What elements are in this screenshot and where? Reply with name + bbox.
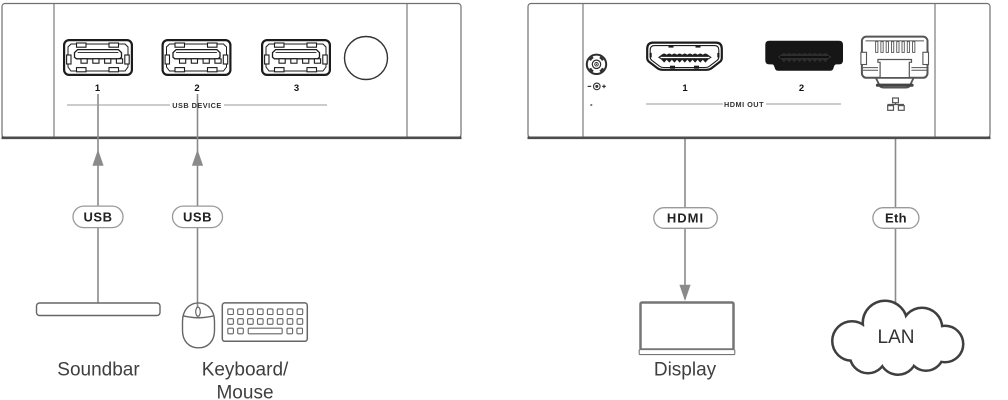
svg-text:2: 2 bbox=[194, 83, 199, 94]
svg-text:Keyboard/: Keyboard/ bbox=[202, 360, 289, 381]
svg-text:Soundbar: Soundbar bbox=[57, 360, 140, 381]
svg-text:HDMI: HDMI bbox=[667, 211, 704, 226]
svg-text:USB DEVICE: USB DEVICE bbox=[172, 101, 222, 110]
svg-text:2: 2 bbox=[799, 83, 804, 94]
svg-text:USB: USB bbox=[84, 209, 113, 224]
svg-text:1: 1 bbox=[682, 83, 688, 94]
svg-text:Display: Display bbox=[654, 360, 717, 381]
svg-text:Mouse: Mouse bbox=[216, 383, 273, 400]
svg-text:HDMI OUT: HDMI OUT bbox=[724, 100, 764, 109]
svg-text:Eth: Eth bbox=[885, 211, 907, 226]
svg-text:USB: USB bbox=[183, 209, 212, 224]
svg-text:3: 3 bbox=[294, 83, 299, 94]
svg-text:1: 1 bbox=[95, 83, 101, 94]
svg-text:LAN: LAN bbox=[878, 327, 915, 348]
